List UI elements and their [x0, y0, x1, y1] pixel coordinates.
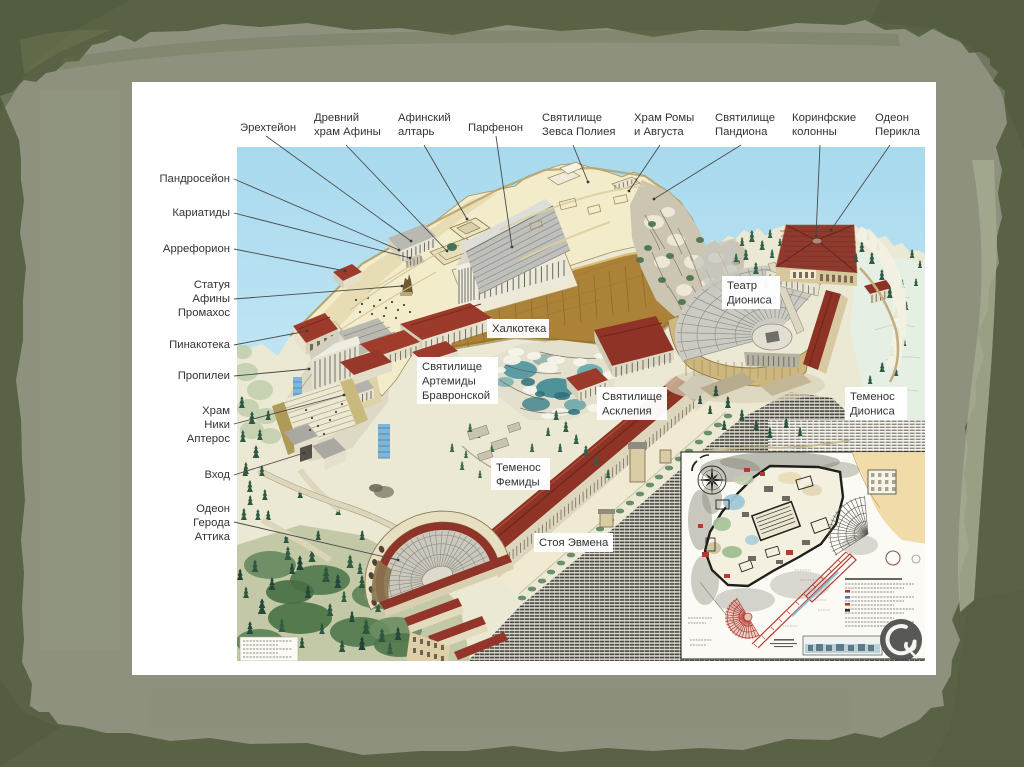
svg-text:Теменос: Теменос [496, 462, 541, 474]
svg-text:Асклепия: Асклепия [602, 406, 652, 418]
svg-text:Коринфские: Коринфские [792, 112, 856, 124]
svg-text:Диониса: Диониса [727, 295, 772, 307]
svg-text:Святилище: Святилище [422, 361, 482, 373]
svg-text:Перикла: Перикла [875, 126, 921, 138]
svg-text:Одеон: Одеон [196, 503, 230, 515]
svg-text:Пропилеи: Пропилеи [178, 370, 230, 382]
svg-text:и Августа: и Августа [634, 126, 684, 138]
svg-text:Аррефорион: Аррефорион [163, 243, 230, 255]
svg-text:Пандиона: Пандиона [715, 126, 768, 138]
svg-text:Храм Ромы: Храм Ромы [634, 112, 694, 124]
svg-text:Халкотека: Халкотека [492, 323, 547, 335]
svg-text:Древний: Древний [314, 112, 359, 124]
svg-text:Артемиды: Артемиды [422, 376, 476, 388]
svg-text:Герода: Герода [193, 517, 231, 529]
svg-text:Кариатиды: Кариатиды [172, 207, 230, 219]
svg-text:Аттика: Аттика [195, 531, 231, 543]
svg-text:Одеон: Одеон [875, 112, 909, 124]
svg-text:алтарь: алтарь [398, 126, 434, 138]
svg-text:храм Афины: храм Афины [314, 126, 381, 138]
svg-text:Эрехтейон: Эрехтейон [240, 122, 296, 134]
svg-text:Афинский: Афинский [398, 112, 451, 124]
svg-text:Пандросейон: Пандросейон [159, 173, 230, 185]
svg-text:Зевса Полиея: Зевса Полиея [542, 126, 616, 138]
svg-text:Промахос: Промахос [178, 307, 231, 319]
svg-text:Ники: Ники [204, 419, 230, 431]
svg-text:Театр: Театр [727, 280, 757, 292]
svg-text:Стоя Эвмена: Стоя Эвмена [539, 537, 609, 549]
svg-text:Святилище: Святилище [715, 112, 775, 124]
svg-text:Диониса: Диониса [850, 406, 895, 418]
svg-text:Теменос: Теменос [850, 391, 895, 403]
svg-text:Аптерос: Аптерос [187, 433, 231, 445]
svg-text:Пинакотека: Пинакотека [169, 339, 231, 351]
svg-text:Храм: Храм [202, 405, 230, 417]
svg-text:Афины: Афины [192, 293, 230, 305]
svg-text:колонны: колонны [792, 126, 837, 138]
svg-text:Святилище: Святилище [542, 112, 602, 124]
svg-text:Статуя: Статуя [194, 279, 230, 291]
svg-text:Бравронской: Бравронской [422, 390, 490, 402]
svg-text:Вход: Вход [204, 469, 230, 481]
svg-text:Фемиды: Фемиды [496, 477, 540, 489]
svg-text:Святилище: Святилище [602, 391, 662, 403]
svg-text:Парфенон: Парфенон [468, 122, 523, 134]
